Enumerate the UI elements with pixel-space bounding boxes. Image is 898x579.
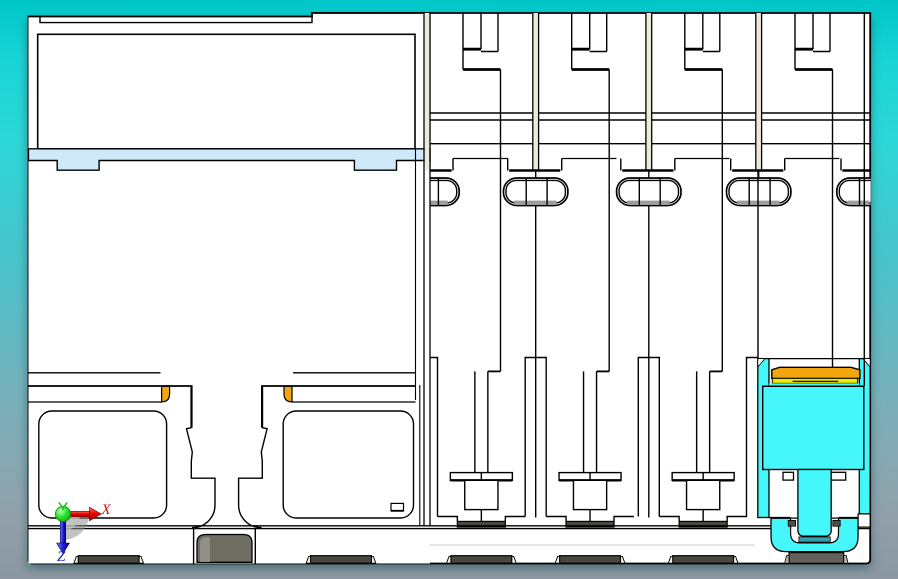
svg-text:X: X bbox=[101, 502, 112, 518]
svg-text:Z: Z bbox=[57, 549, 66, 565]
